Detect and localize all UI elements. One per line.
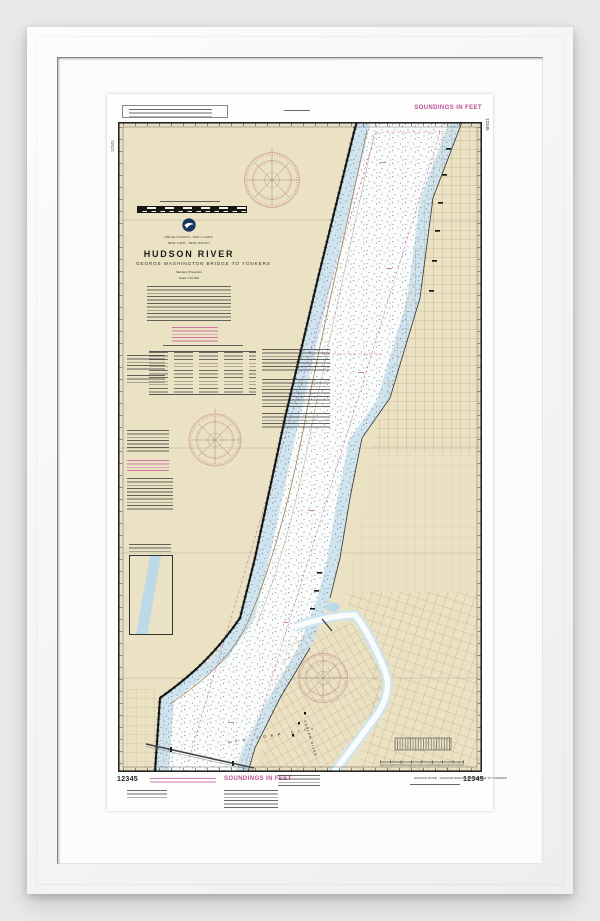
soundings-label-top: SOUNDINGS IN FEET: [370, 105, 482, 111]
chart-number-left-edge: 12345: [111, 140, 115, 152]
rail-yard: [395, 738, 451, 750]
top-margin-note-box: [122, 105, 228, 118]
projection-note: Mercator Projection: [155, 271, 223, 274]
bottom-right-subnote: [410, 784, 460, 787]
note-right-a: [262, 349, 330, 373]
chart-title: HUDSON RIVER: [121, 249, 257, 259]
chart-title-block: UNITED STATES - EAST COAST NEW YORK - NE…: [121, 218, 257, 330]
note-right-c: [262, 413, 330, 429]
bottom-right-title: HUDSON RIVER - GEORGE WASHINGTON BRIDGE …: [414, 777, 460, 780]
chart-number-right-edge: 12345: [485, 118, 490, 131]
tide-table-caption: [163, 345, 243, 348]
scale-bar-fine: [137, 210, 247, 213]
bottom-small-note: [278, 775, 320, 786]
pond: [326, 603, 340, 612]
title-country: UNITED STATES - EAST COAST: [152, 236, 227, 239]
note-mid-left-a: [127, 430, 169, 454]
title-block-notes: [147, 286, 231, 322]
note-mid-left-b: [127, 478, 173, 512]
chart-subtitle: GEORGE WASHINGTON BRIDGE TO YONKERS: [136, 262, 242, 267]
bottom-left-note: [127, 790, 167, 799]
authorities-note-magenta: [172, 327, 218, 342]
inset-overview-map: [129, 555, 173, 635]
chart-number-bottom-left: 12345: [117, 776, 138, 783]
inset-map-title: [129, 544, 171, 553]
noaa-logo: [121, 218, 257, 237]
edition-note-magenta: [150, 778, 216, 783]
scale-note: Scale 1:10,000: [155, 277, 223, 280]
inset-river-band: [135, 555, 161, 635]
bottom-paragraph-note: [224, 790, 278, 809]
top-margin-center-note: [284, 110, 310, 113]
chart-number-bottom-right: 12345: [463, 776, 484, 783]
tide-table: [149, 351, 256, 395]
note-right-b: [262, 379, 330, 407]
note-mid-left-magenta: [127, 460, 169, 472]
bottom-right-title-area: HUDSON RIVER - GEORGE WASHINGTON BRIDGE …: [368, 777, 460, 787]
note-left-a: [127, 355, 165, 370]
title-region: NEW YORK - NEW JERSEY: [152, 242, 227, 245]
note-left-b: [127, 375, 165, 384]
scale-bar-caption: [160, 201, 220, 204]
framed-chart-scene: SOUNDINGS IN FEET 12345 12345 UNITED STA…: [0, 0, 600, 921]
